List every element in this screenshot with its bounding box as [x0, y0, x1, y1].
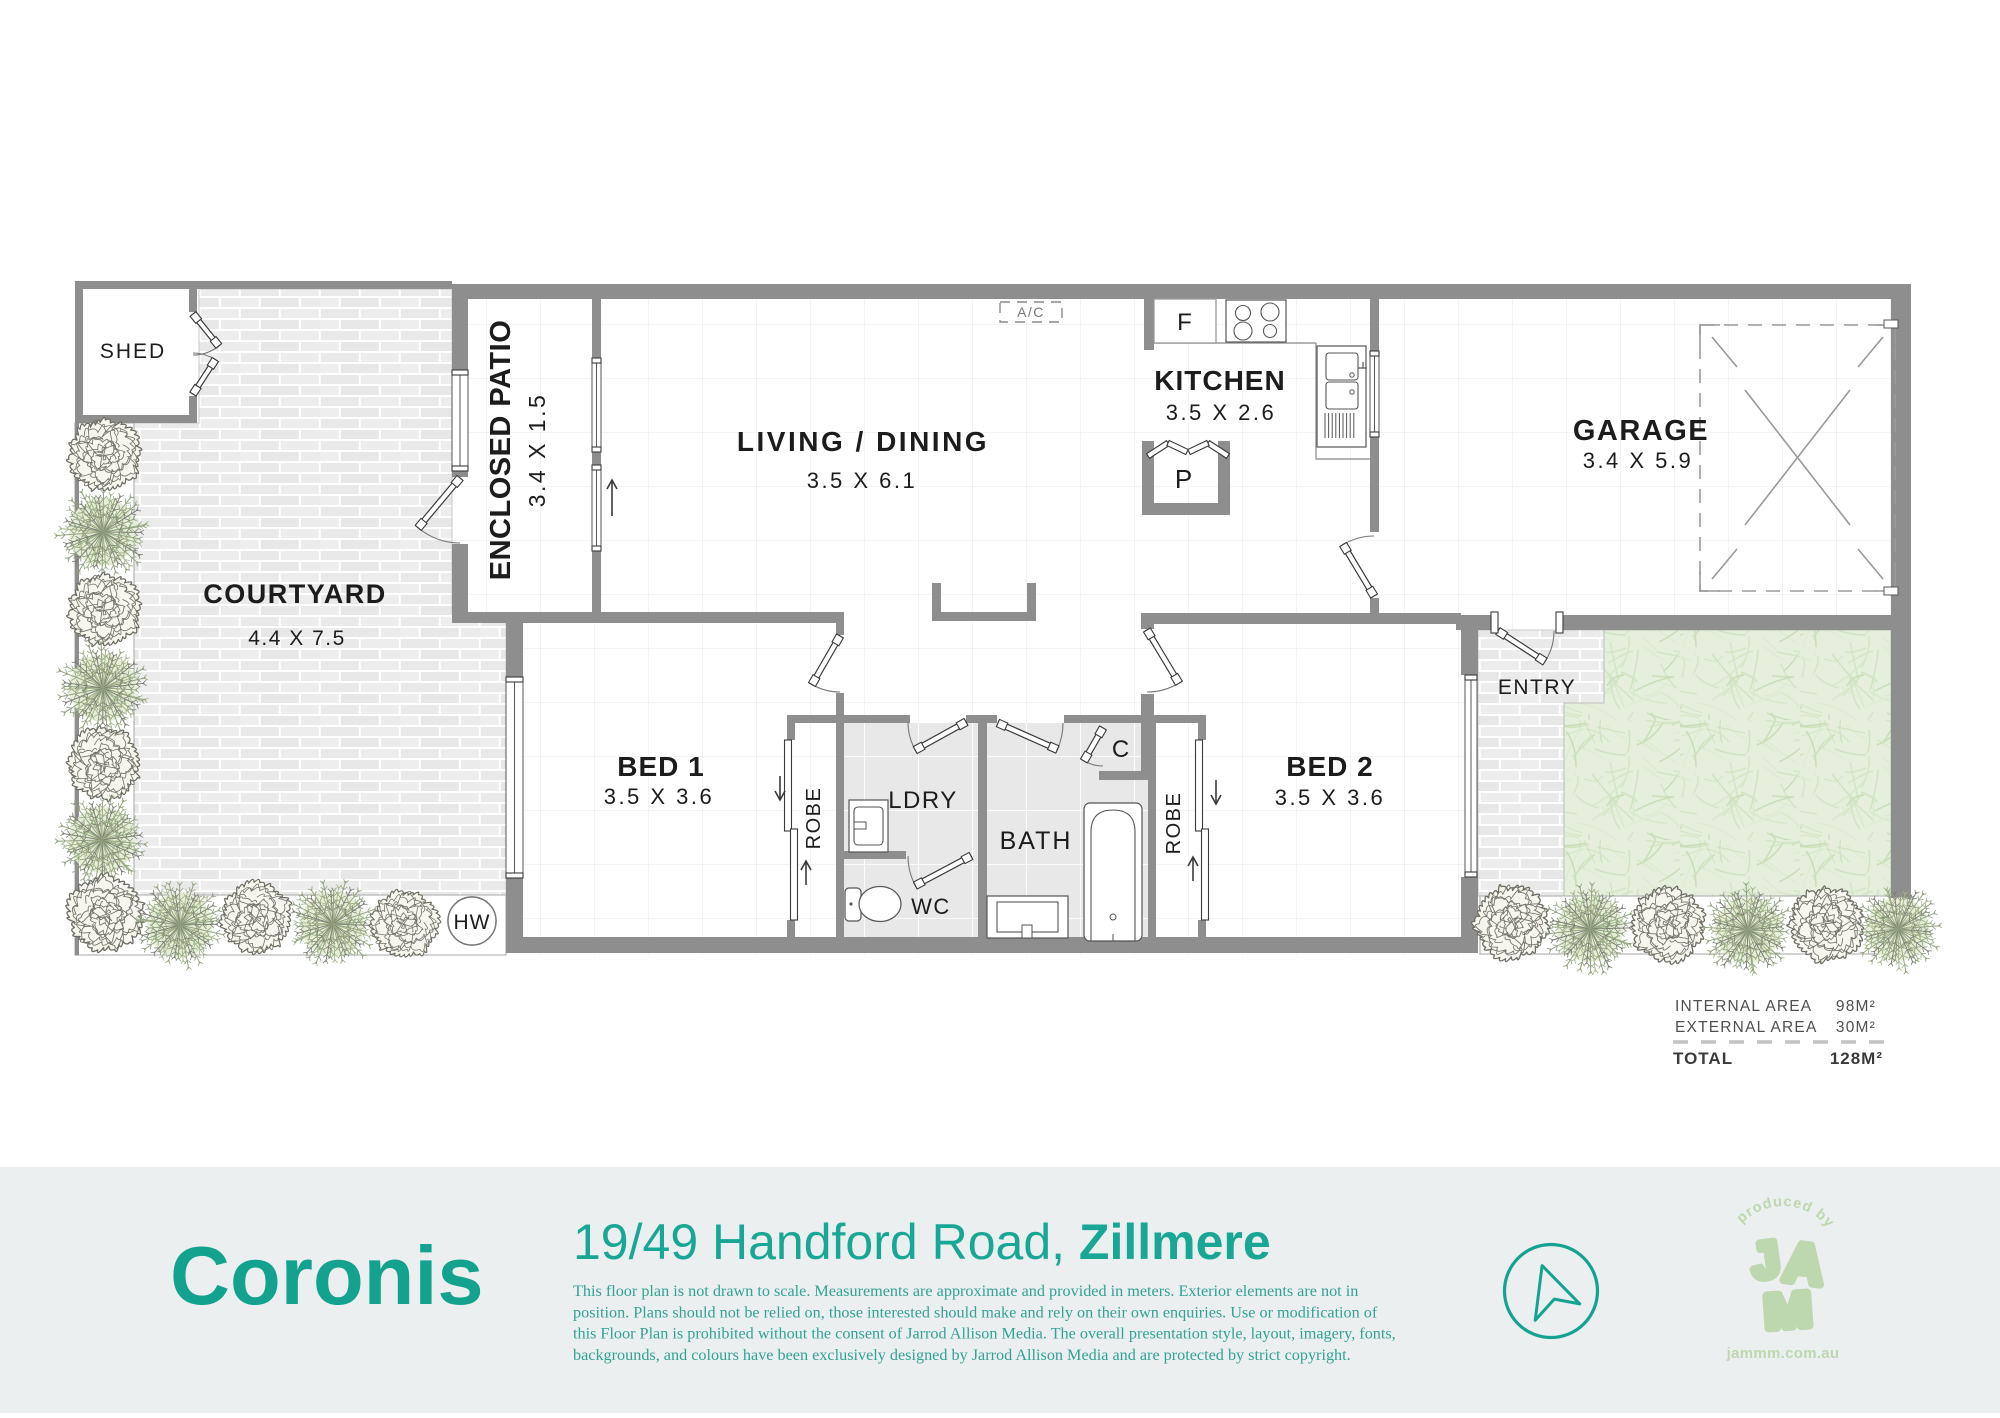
- svg-text:LIVING / DINING: LIVING / DINING: [737, 426, 989, 457]
- svg-text:INTERNAL AREA: INTERNAL AREA: [1675, 998, 1812, 1015]
- svg-text:this Floor Plan is prohibited: this Floor Plan is prohibited without th…: [573, 1325, 1396, 1343]
- svg-text:4.4 X 7.5: 4.4 X 7.5: [248, 627, 346, 650]
- svg-text:GARAGE: GARAGE: [1573, 415, 1709, 447]
- svg-text:P: P: [1175, 464, 1193, 494]
- svg-text:Coronis: Coronis: [170, 1229, 484, 1322]
- svg-text:KITCHEN: KITCHEN: [1154, 365, 1285, 396]
- svg-text:3.5 X 3.6: 3.5 X 3.6: [1275, 785, 1386, 810]
- svg-text:M: M: [1762, 1282, 1813, 1339]
- svg-text:A/C: A/C: [1017, 304, 1045, 320]
- svg-text:position. Plans should not be: position. Plans should not be relied on,…: [573, 1303, 1378, 1321]
- svg-text:BATH: BATH: [1000, 827, 1073, 855]
- svg-text:F: F: [1177, 309, 1193, 336]
- svg-text:3.4 X 5.9: 3.4 X 5.9: [1583, 448, 1694, 473]
- svg-text:This floor plan is not drawn t: This floor plan is not drawn to scale. M…: [573, 1282, 1358, 1300]
- svg-text:WC: WC: [911, 894, 951, 919]
- svg-text:3.5 X 6.1: 3.5 X 6.1: [807, 468, 918, 493]
- svg-text:BED 1: BED 1: [617, 751, 704, 782]
- svg-text:3.5 X 2.6: 3.5 X 2.6: [1166, 400, 1277, 425]
- svg-text:C: C: [1112, 736, 1130, 763]
- svg-text:128M²: 128M²: [1830, 1049, 1883, 1068]
- svg-text:COURTYARD: COURTYARD: [203, 579, 387, 609]
- svg-text:ROBE: ROBE: [1163, 792, 1185, 855]
- svg-text:jammm.com.au: jammm.com.au: [1726, 1345, 1840, 1362]
- svg-text:30M²: 30M²: [1836, 1019, 1876, 1036]
- svg-text:LDRY: LDRY: [888, 787, 958, 814]
- svg-text:ROBE: ROBE: [803, 787, 825, 850]
- svg-text:TOTAL: TOTAL: [1673, 1049, 1733, 1068]
- svg-text:ENCLOSED PATIO: ENCLOSED PATIO: [485, 320, 517, 581]
- svg-text:SHED: SHED: [100, 340, 166, 363]
- svg-text:3.4 X 1.5: 3.4 X 1.5: [524, 393, 550, 508]
- svg-text:backgrounds, and colours have: backgrounds, and colours have been exclu…: [573, 1346, 1351, 1364]
- svg-text:HW: HW: [454, 911, 491, 934]
- svg-text:98M²: 98M²: [1836, 998, 1876, 1015]
- svg-text:ENTRY: ENTRY: [1498, 676, 1576, 699]
- svg-text:19/49 Handford Road, Zillmere: 19/49 Handford Road, Zillmere: [573, 1214, 1271, 1270]
- svg-text:EXTERNAL AREA: EXTERNAL AREA: [1675, 1019, 1818, 1036]
- svg-text:BED 2: BED 2: [1286, 751, 1373, 782]
- svg-text:3.5 X 3.6: 3.5 X 3.6: [604, 784, 715, 809]
